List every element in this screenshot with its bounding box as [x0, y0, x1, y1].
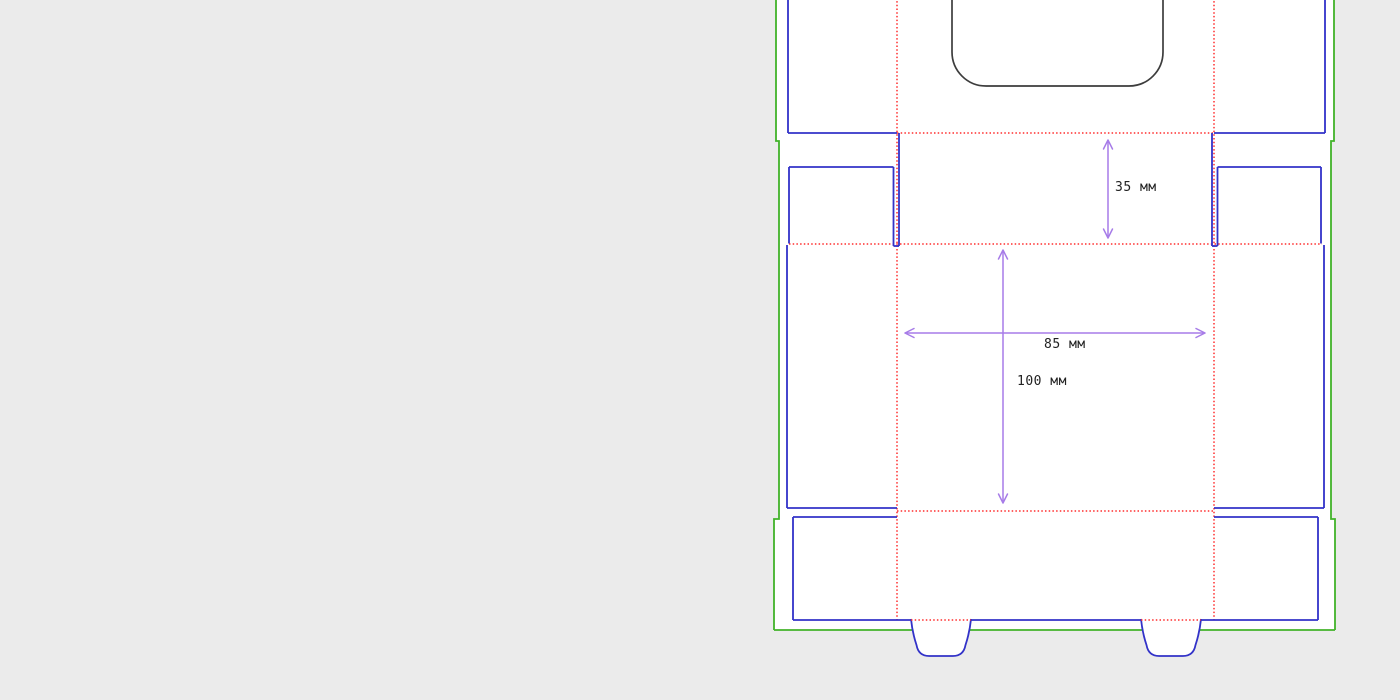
tab-right: [1141, 619, 1201, 656]
dimension-label-panel-height: 100 мм: [1017, 375, 1067, 388]
dimension-label-flap-height: 35 мм: [1115, 181, 1157, 194]
dieline-drawing: [0, 0, 1400, 700]
dimension-label-panel-width: 85 мм: [1044, 338, 1086, 351]
drawing-canvas[interactable]: 35 мм 85 мм 100 мм: [0, 0, 1400, 700]
sheet-fill: [774, 0, 1335, 630]
tab-left: [911, 619, 971, 656]
